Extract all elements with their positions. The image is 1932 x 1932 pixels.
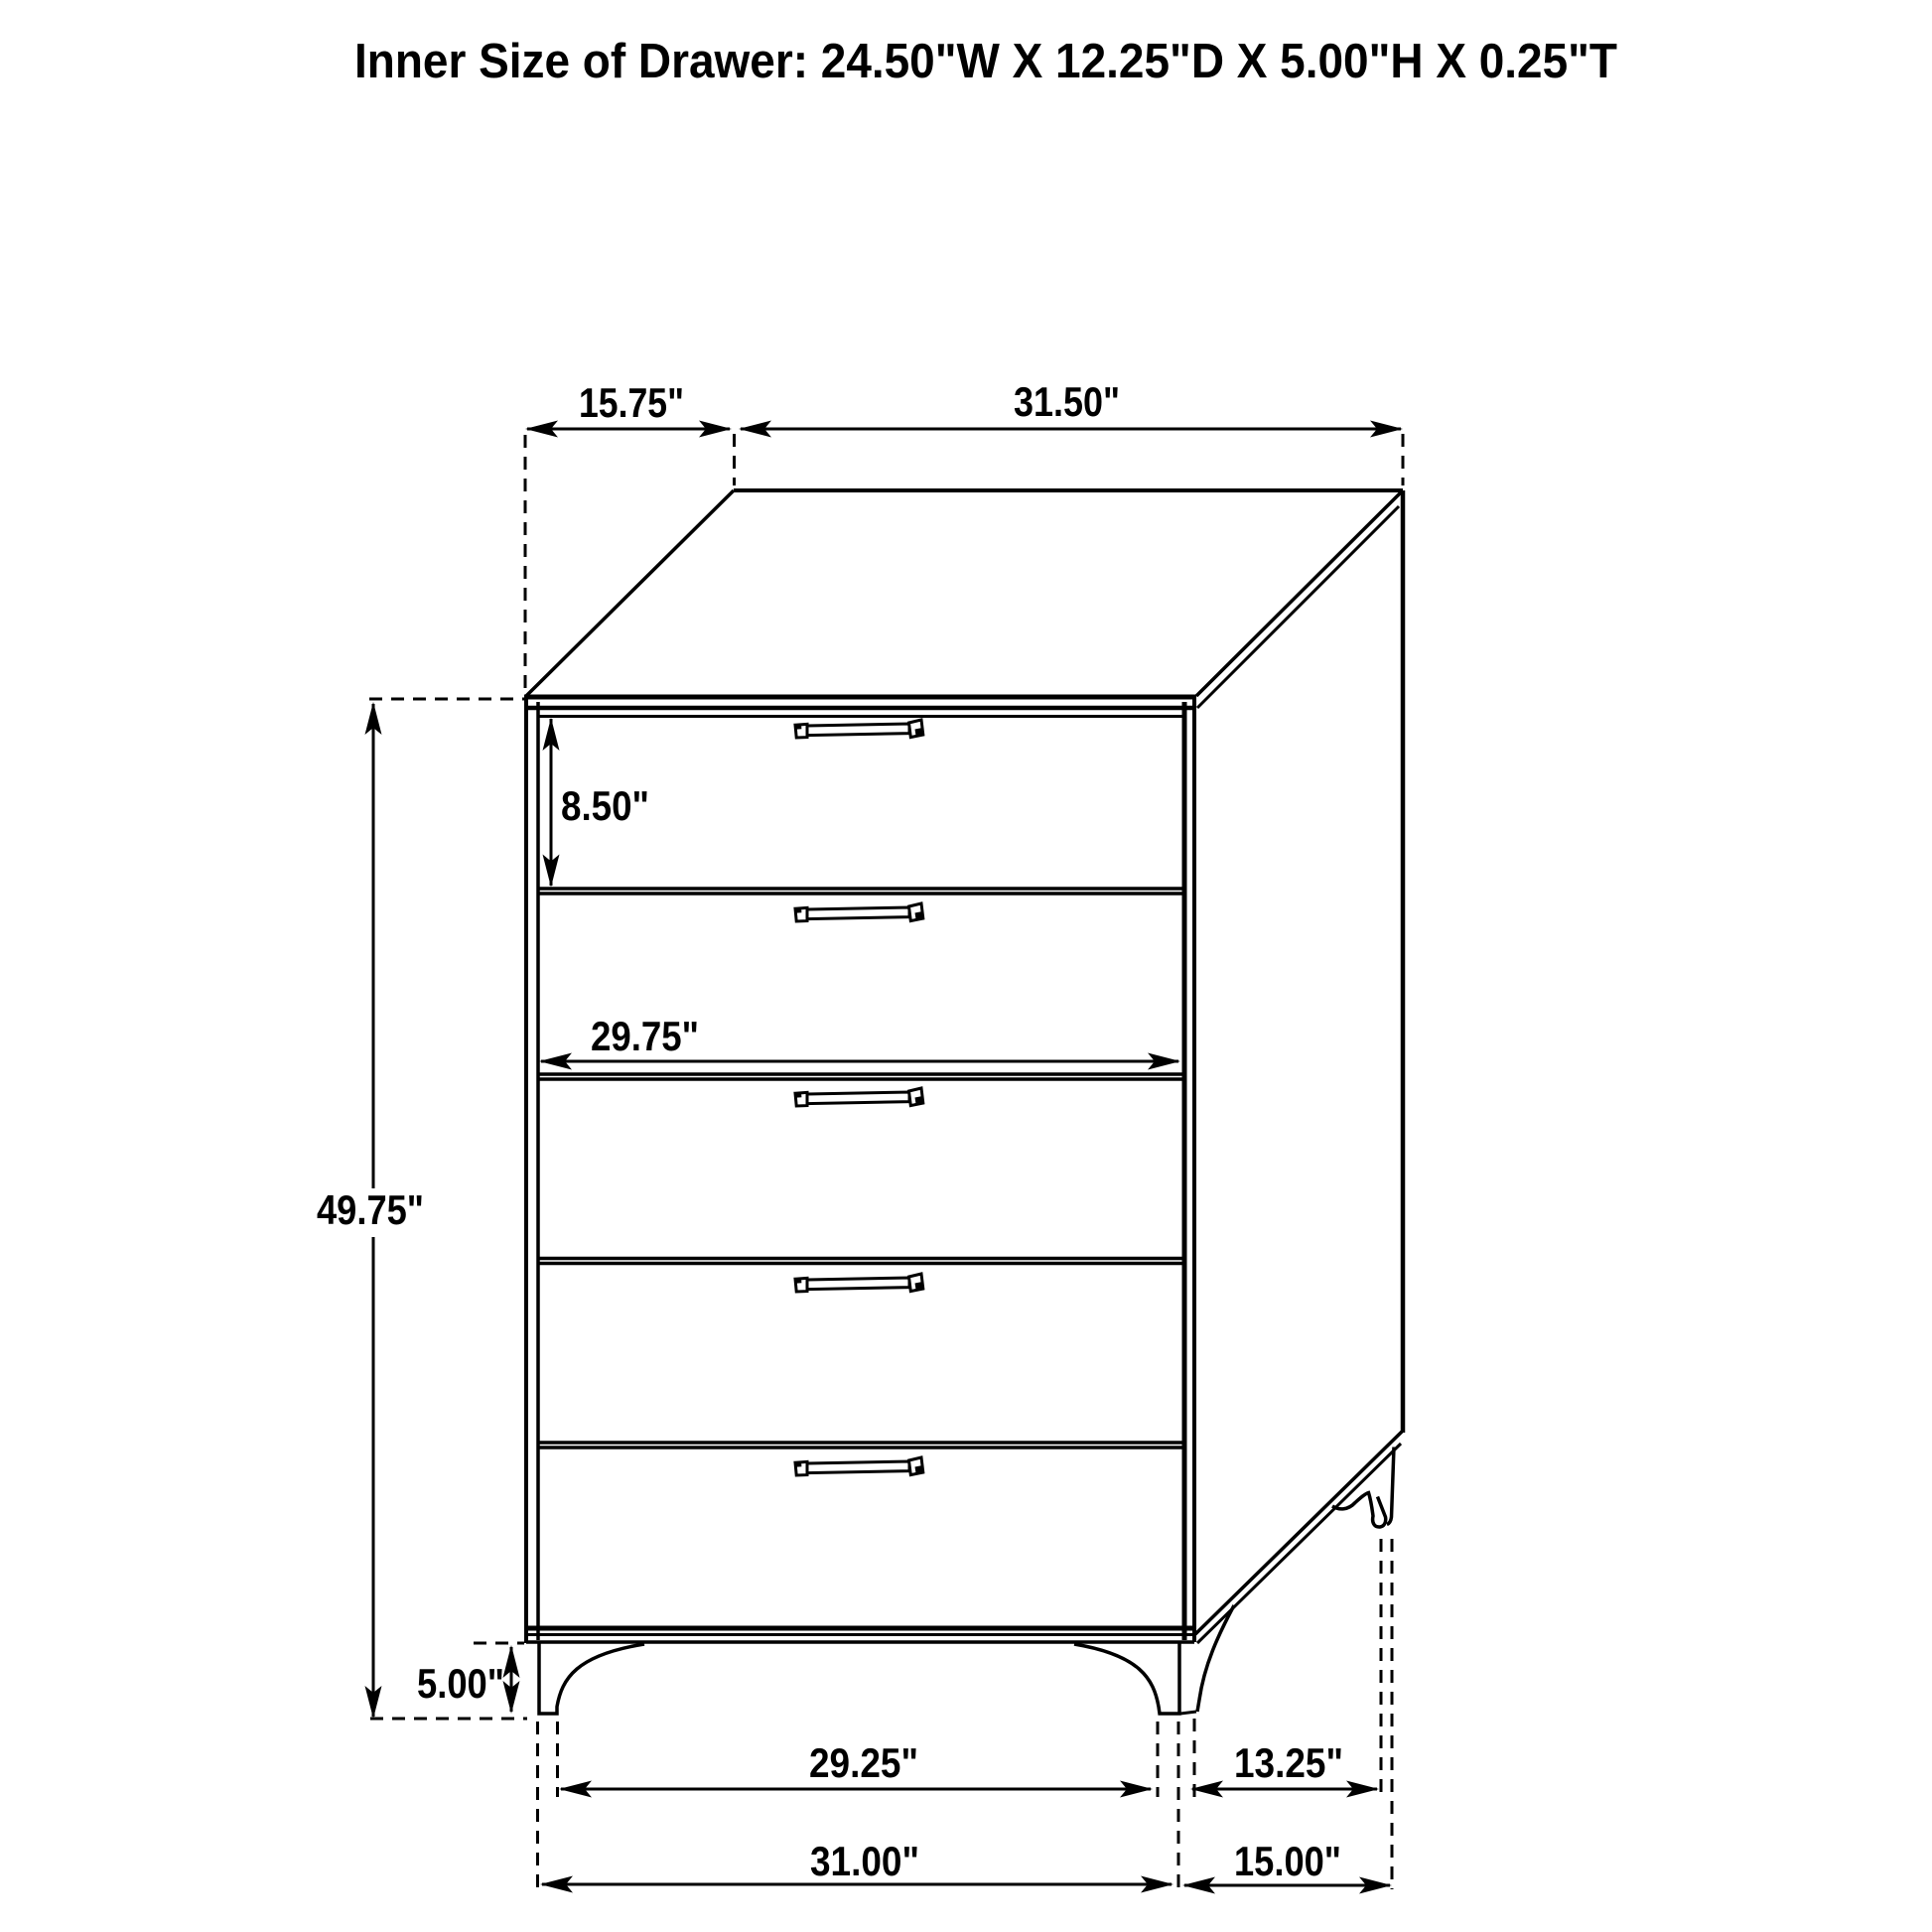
svg-text:29.75": 29.75": [591, 1013, 699, 1059]
svg-text:13.25": 13.25": [1234, 1739, 1343, 1786]
svg-text:8.50": 8.50": [561, 782, 649, 829]
svg-text:15.75": 15.75": [579, 379, 684, 426]
svg-text:31.50": 31.50": [1014, 378, 1120, 425]
svg-text:29.25": 29.25": [809, 1739, 918, 1786]
svg-text:5.00": 5.00": [417, 1660, 504, 1707]
svg-text:31.00": 31.00": [810, 1838, 919, 1884]
svg-text:15.00": 15.00": [1234, 1838, 1341, 1884]
svg-text:49.75": 49.75": [317, 1186, 424, 1233]
svg-text:Inner Size of Drawer: 24.50"W: Inner Size of Drawer: 24.50"W X 12.25"D …: [354, 35, 1617, 88]
